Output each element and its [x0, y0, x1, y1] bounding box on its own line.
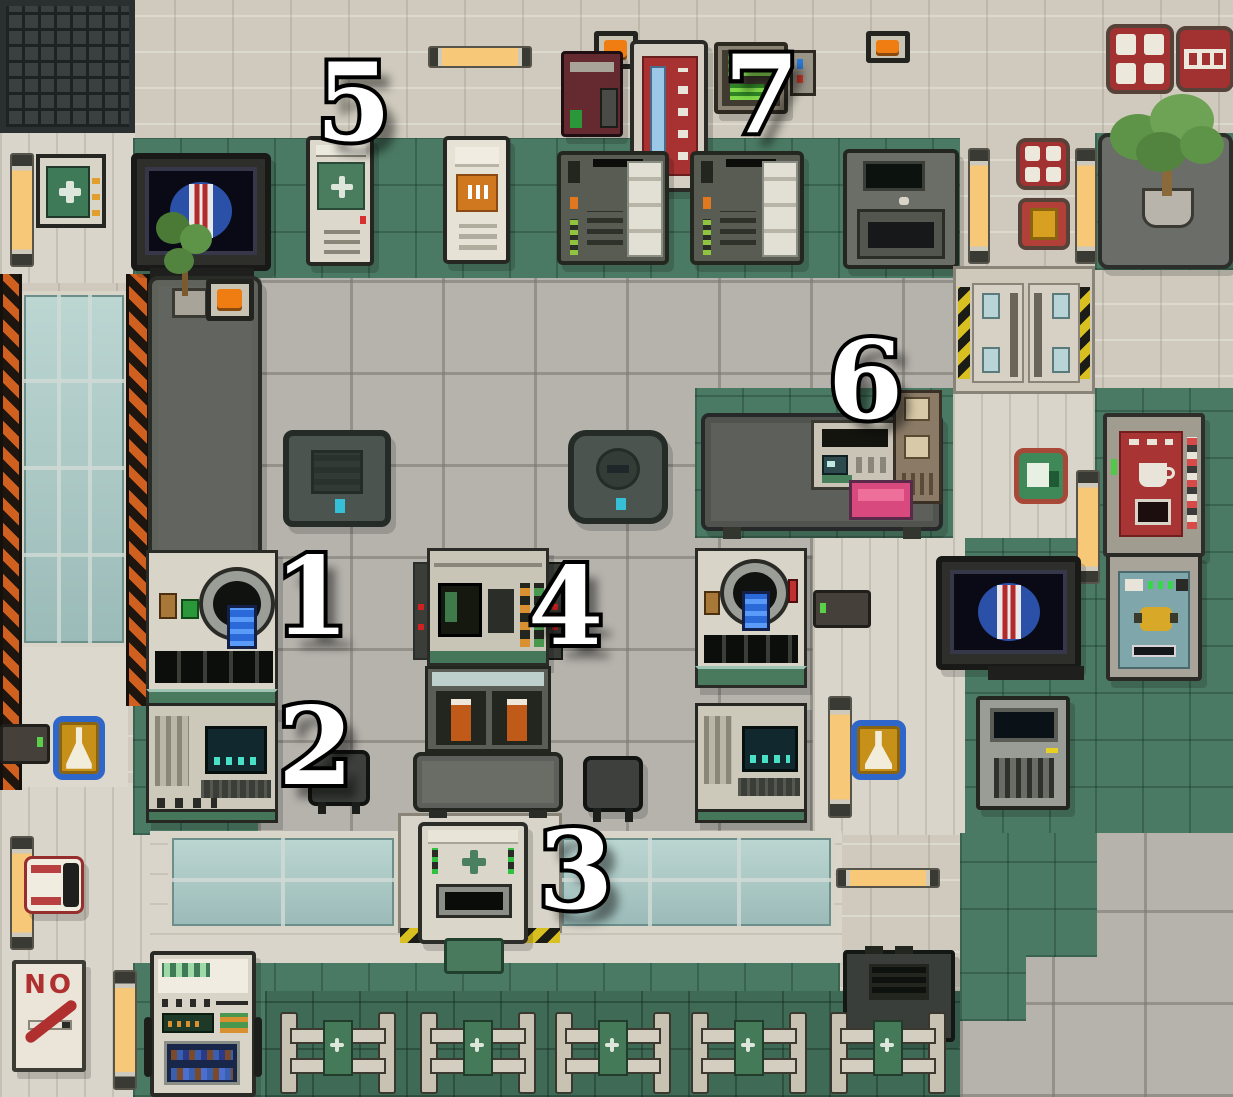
console-vent-panel	[155, 716, 189, 786]
microwave-yellow-led	[1046, 748, 1058, 753]
coffee-dispense-slot	[1135, 499, 1171, 525]
coffee-maker[interactable]	[561, 51, 623, 137]
window-left	[20, 291, 128, 647]
security-camera-right	[813, 590, 871, 628]
marker-1: 1	[274, 552, 349, 644]
vend-button-row	[162, 999, 212, 1007]
airlock-hazard-left	[958, 287, 970, 379]
led-column-right	[508, 848, 514, 874]
locker-green-panel	[317, 162, 365, 210]
wall-light-right-2	[828, 696, 852, 818]
dispenser-screen	[438, 583, 482, 637]
fax-buttons	[856, 457, 890, 473]
first-aid-cabinet[interactable]	[36, 154, 106, 228]
microwave-vents	[994, 758, 1054, 798]
orange-bottle	[507, 699, 527, 741]
console-keyboard	[738, 778, 800, 796]
gold-door-sign	[1018, 198, 1070, 250]
orange-bottle	[451, 699, 471, 741]
hazard-stripe-wall-left	[0, 274, 22, 790]
blue-beaker[interactable]	[227, 605, 257, 649]
floor-vent-grate	[0, 0, 135, 133]
nanomed-vending-machine[interactable]	[150, 951, 256, 1097]
fax-mini-screen	[822, 455, 848, 475]
atm-gold-emblem	[1140, 607, 1172, 631]
coffee-maker-panel	[570, 62, 614, 72]
marker-2: 2	[278, 702, 353, 794]
medical-cross-icon	[57, 179, 83, 205]
chemistry-console-right[interactable]	[695, 703, 807, 823]
oven-knob	[899, 197, 909, 205]
grinder-slot-band	[155, 651, 273, 683]
pharmacy-sign-band	[1184, 49, 1226, 70]
security-camera-left	[0, 724, 50, 764]
wall-light-top	[428, 46, 532, 68]
wall-light-left-1	[10, 153, 34, 267]
coffee-vend-buttons	[1187, 437, 1197, 529]
coffee-cup-icon	[1139, 463, 1167, 487]
wall-light-mid-1	[968, 148, 990, 264]
tv-monitor-right[interactable]	[936, 556, 1081, 670]
first-aid-leds	[92, 170, 100, 216]
airlock-double-door[interactable]	[953, 266, 1095, 394]
red-cabinet-slats	[678, 68, 688, 160]
medbay-cross-sign-large	[1106, 24, 1174, 94]
coffee-vending-machine[interactable]	[1103, 413, 1205, 557]
bonsai-tree	[1108, 92, 1228, 262]
atm-machine[interactable]	[1106, 553, 1202, 681]
paper-stack	[904, 435, 930, 459]
pink-folder[interactable]	[849, 480, 913, 520]
vend-bumper-right	[254, 1017, 262, 1077]
coffee-vend-face	[1119, 431, 1183, 537]
atm-face	[1118, 571, 1190, 669]
dispenser-slot	[488, 589, 514, 633]
coffee-maker-led	[570, 110, 582, 128]
coffee-maker-arm	[600, 88, 618, 128]
locker-vents	[324, 230, 360, 254]
marker-6: 6	[828, 336, 903, 428]
medical-cross-icon	[460, 848, 488, 876]
reagent-grinder-station[interactable]	[146, 550, 278, 715]
marker-4: 4	[528, 562, 603, 654]
chemistry-console[interactable]	[146, 703, 278, 823]
airlock-leaf-right	[1028, 283, 1080, 383]
brown-bottle[interactable]	[704, 591, 720, 615]
orange-locker-icon	[468, 185, 488, 199]
wall-button-green[interactable]	[1014, 448, 1068, 504]
first-aid-inner	[46, 166, 90, 218]
dark-machine-window	[869, 964, 929, 1000]
medbay-cross-sign-small	[1016, 138, 1070, 190]
orange-locker-vents	[459, 224, 497, 250]
airlock-leaf-left	[972, 283, 1024, 383]
brown-bottle[interactable]	[159, 593, 177, 619]
freezer-door	[627, 161, 663, 257]
storage-crate-round[interactable]	[568, 430, 668, 524]
oven-screen	[863, 161, 925, 191]
microwave-machine[interactable]	[976, 696, 1070, 810]
railing-segment	[830, 1012, 946, 1090]
freezer-orange-led	[570, 197, 578, 209]
green-bottle[interactable]	[181, 599, 199, 619]
chemistry-sign-left	[53, 716, 105, 780]
medbay-floor-br-2	[960, 955, 1026, 1021]
console-vent-panel	[704, 716, 732, 784]
railing-segment	[420, 1012, 536, 1090]
output-tray	[444, 938, 504, 974]
storage-crate-square[interactable]	[283, 430, 391, 527]
orange-locker-panel	[456, 174, 498, 212]
atm-slot	[1132, 645, 1176, 657]
console-keyboard	[201, 780, 271, 798]
game-viewport: NO	[0, 0, 1233, 1097]
marker-3: 3	[538, 826, 613, 918]
led-column-left	[432, 848, 438, 874]
locker-red-dot	[360, 216, 366, 224]
railing-segment	[691, 1012, 807, 1090]
oven-door	[857, 209, 945, 259]
console-screen	[205, 726, 267, 774]
vend-keys	[220, 1013, 248, 1033]
station-logo-screen	[978, 583, 1040, 641]
orange-locker[interactable]	[443, 136, 510, 264]
freezer-orange-led	[703, 197, 711, 209]
railing-segment	[555, 1012, 671, 1090]
medical-cross-icon	[330, 175, 354, 199]
freezer-green-leds	[570, 219, 578, 255]
wall-light-bl-2	[113, 970, 137, 1090]
crate-indicator	[616, 498, 626, 510]
stool-right[interactable]	[583, 756, 643, 812]
railing-segment	[280, 1012, 396, 1090]
medbay-floor-br-1	[960, 833, 1097, 957]
freezer-door	[762, 161, 798, 257]
vend-showcase	[164, 1041, 240, 1085]
output-slot	[436, 884, 512, 918]
no-smoking-sign: NO	[12, 960, 86, 1072]
reagent-grinder-station-right[interactable]	[695, 548, 807, 688]
red-cabinet-glass	[650, 66, 666, 162]
grinder-slot-band	[704, 635, 798, 663]
paper-stack	[904, 397, 930, 421]
wall-light-mid-2	[1075, 148, 1097, 264]
marker-5: 5	[316, 58, 391, 150]
dispenser-beaker-deck	[425, 666, 551, 752]
orange-locker-top	[455, 147, 499, 167]
microwave-window	[990, 708, 1058, 742]
beaker-slot-left	[436, 691, 486, 745]
red-vial[interactable]	[788, 579, 798, 603]
pharmacy-sign	[1176, 26, 1233, 92]
tv-right-base	[988, 666, 1084, 680]
alarm-button-on-table[interactable]	[206, 279, 254, 321]
oven-machine[interactable]	[843, 149, 959, 269]
blue-beaker[interactable]	[742, 591, 770, 631]
medical-freezer-1[interactable]	[557, 151, 669, 265]
console-screen	[742, 726, 798, 772]
crate-indicator	[335, 499, 345, 513]
freezer-green-leds	[703, 219, 711, 255]
fire-alarm-top-right[interactable]	[866, 31, 910, 63]
chemistry-sign-right	[851, 720, 906, 780]
medicine-output-machine[interactable]	[418, 822, 528, 944]
coffee-vend-led	[1111, 459, 1117, 475]
medical-freezer-2[interactable]	[690, 151, 804, 265]
medicine-machine-top	[428, 830, 518, 844]
marker-7: 7	[724, 50, 799, 142]
atm-green-leds	[1148, 581, 1174, 589]
beaker-slot-right	[492, 691, 542, 745]
window-bottom-left	[168, 834, 398, 930]
console-buttons	[157, 798, 217, 808]
wall-light-bottom-right	[836, 868, 940, 888]
vend-header	[158, 959, 248, 993]
roller-bed[interactable]	[24, 856, 84, 914]
dispenser-base	[413, 752, 563, 812]
vend-bumper-left	[144, 1017, 152, 1077]
no-smoking-text: NO	[16, 970, 82, 1000]
vend-display	[162, 1013, 214, 1033]
